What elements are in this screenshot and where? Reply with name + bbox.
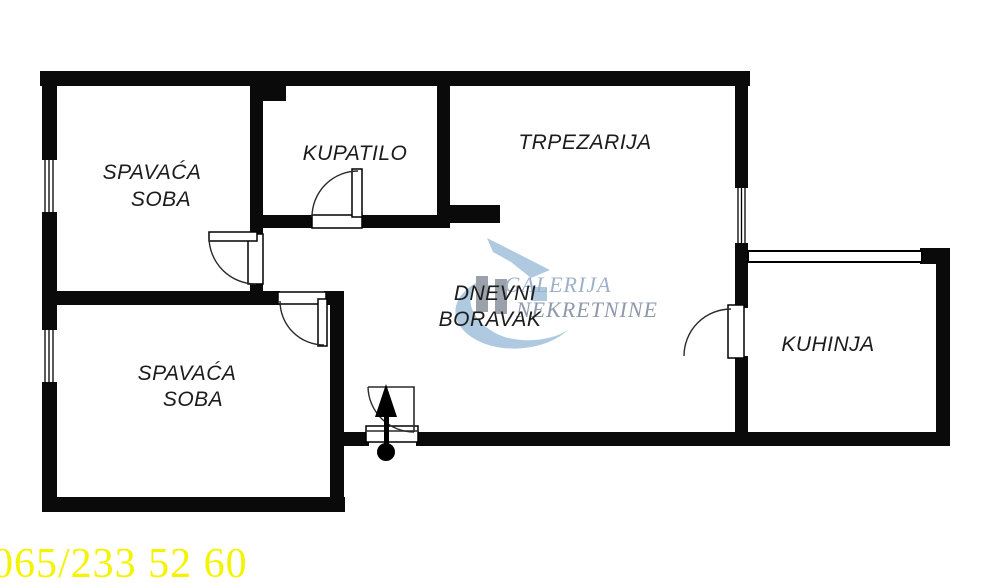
wall-kitchen-divider-upper — [735, 262, 748, 308]
floorplan-canvas: GALERIJA NEKRETNINE — [0, 0, 1000, 583]
room-label-living-2: BORAVAK — [439, 308, 542, 331]
wall-kitchen-right — [936, 248, 950, 446]
window-bedroom-top — [42, 160, 57, 212]
room-label-bedroom-top-1: SPAVAĆA — [103, 161, 202, 184]
door-entrance-threshold — [366, 426, 418, 442]
wall-kitchen-divider-lower — [735, 356, 748, 432]
phone-number: 065/233 52 60 — [0, 541, 248, 583]
wall-top — [40, 71, 750, 86]
room-label-bedroom-top-2: SOBA — [131, 188, 191, 211]
door-kitchen-leaf — [728, 305, 744, 358]
wall-bathroom-bottom-right — [362, 215, 450, 228]
door-bathroom-leaf — [352, 169, 362, 217]
window-bedroom-bottom — [42, 330, 57, 382]
room-label-bedroom-bottom-2: SOBA — [163, 388, 223, 411]
room-label-kitchen: KUHINJA — [781, 333, 874, 356]
room-label-dining: TRPEZARIJA — [518, 131, 651, 154]
wall-bedroom-bathroom — [250, 86, 263, 228]
room-label-bedroom-bottom-1: SPAVAĆA — [138, 362, 237, 385]
door-bedroom-bottom-leaf — [318, 299, 327, 346]
window-dining — [735, 188, 748, 243]
door-bedroom-top-leaf — [209, 232, 257, 241]
wall-bottom-bedroom — [42, 497, 345, 512]
wall-hall-stub — [450, 205, 500, 223]
room-label-living-1: DNEVNI — [454, 282, 536, 305]
room-label-bathroom: KUPATILO — [303, 142, 408, 165]
wall-bathroom-dining — [437, 86, 450, 228]
wall-bedroom2-right — [330, 291, 344, 436]
window-kitchen — [748, 251, 922, 262]
wall-bedrooms-divider-left — [42, 291, 280, 305]
wall-kitchen-corner — [920, 248, 950, 264]
wall-bathroom-stub — [250, 86, 286, 101]
wall-bottom-living-right — [416, 432, 950, 446]
